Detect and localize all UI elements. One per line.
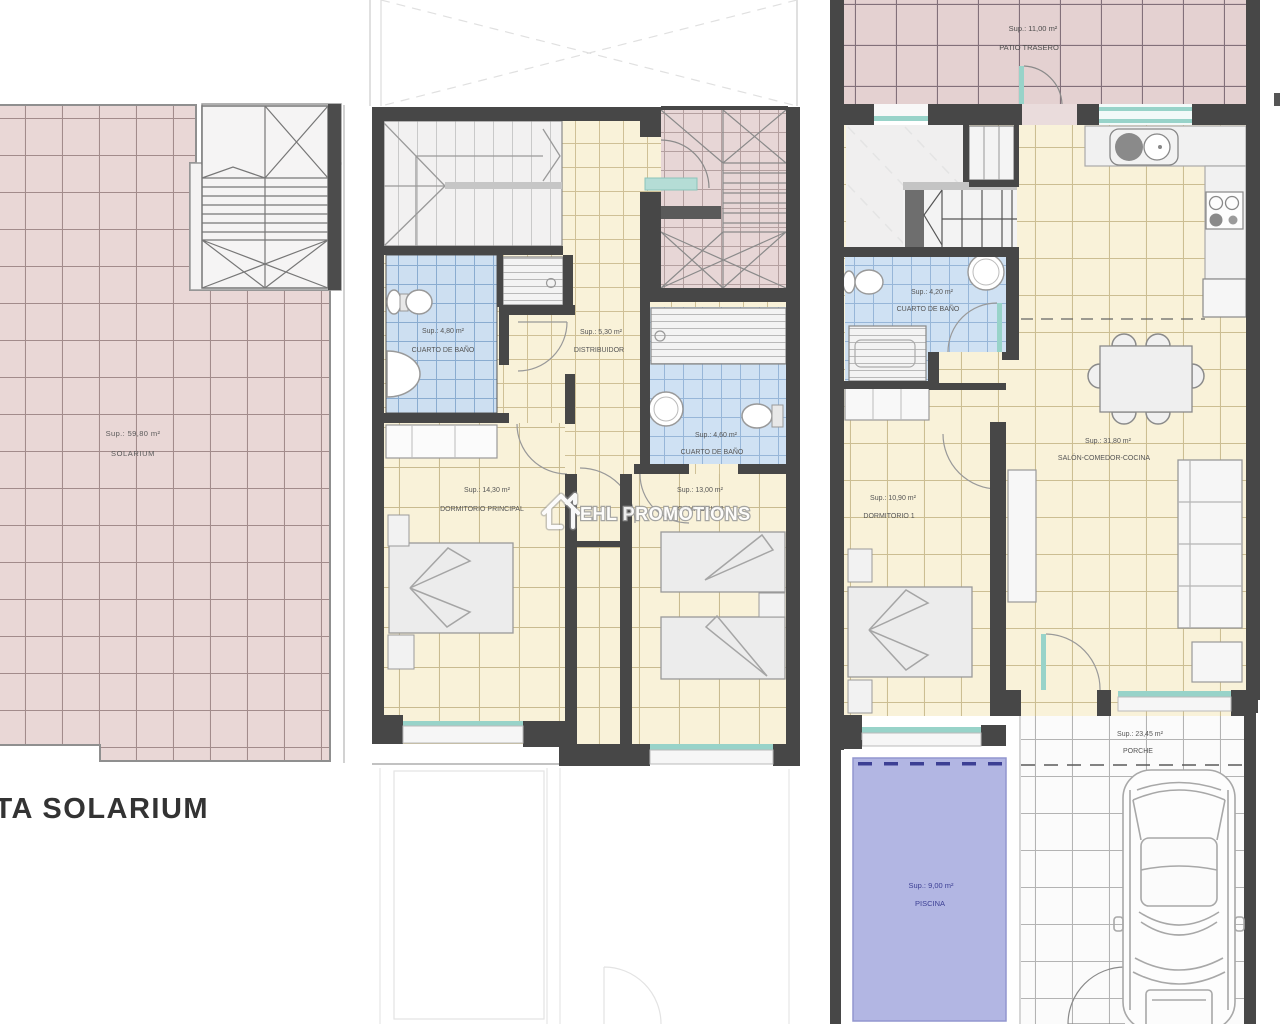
svg-text:Sup.: 23,45 m²: Sup.: 23,45 m² [1117,731,1164,738]
svg-text:Sup.: 4,80 m²: Sup.: 4,80 m² [422,328,465,335]
svg-text:Sup.: 31,80 m²: Sup.: 31,80 m² [1085,438,1132,445]
svg-text:DORMITORIO PRINCIPAL: DORMITORIO PRINCIPAL [440,506,524,513]
svg-text:PATIO TRASERO: PATIO TRASERO [999,43,1059,52]
svg-text:Sup.: 4,60 m²: Sup.: 4,60 m² [695,432,738,439]
svg-text:NTA SOLARIUM: NTA SOLARIUM [0,793,209,825]
svg-text:Sup.: 5,30 m²: Sup.: 5,30 m² [580,329,623,336]
svg-text:PORCHE: PORCHE [1123,748,1153,755]
svg-text:Sup.: 11,00 m²: Sup.: 11,00 m² [1009,24,1058,33]
svg-text:Sup.: 9,00 m²: Sup.: 9,00 m² [908,881,954,890]
svg-text:DORMITORIO 1: DORMITORIO 1 [863,513,914,520]
svg-text:CUARTO DE BAÑO: CUARTO DE BAÑO [897,304,960,313]
svg-text:SALÓN-COMEDOR-COCINA: SALÓN-COMEDOR-COCINA [1058,453,1151,462]
svg-text:Sup.: 13,00 m²: Sup.: 13,00 m² [677,487,724,494]
svg-text:Sup.: 4,20 m²: Sup.: 4,20 m² [911,289,954,296]
svg-text:EHL PROMOTIONS: EHL PROMOTIONS [580,504,751,524]
svg-text:CUARTO DE BAÑO: CUARTO DE BAÑO [681,447,744,456]
svg-text:DISTRIBUIDOR: DISTRIBUIDOR [574,347,624,354]
svg-text:SOLARIUM: SOLARIUM [111,449,155,458]
svg-text:Sup.: 10,90 m²: Sup.: 10,90 m² [870,495,917,502]
svg-text:PISCINA: PISCINA [915,899,945,908]
svg-text:Sup.: 59,80 m²: Sup.: 59,80 m² [106,429,161,438]
svg-text:CUARTO DE BAÑO: CUARTO DE BAÑO [412,345,475,354]
svg-text:Sup.: 14,30 m²: Sup.: 14,30 m² [464,487,511,494]
